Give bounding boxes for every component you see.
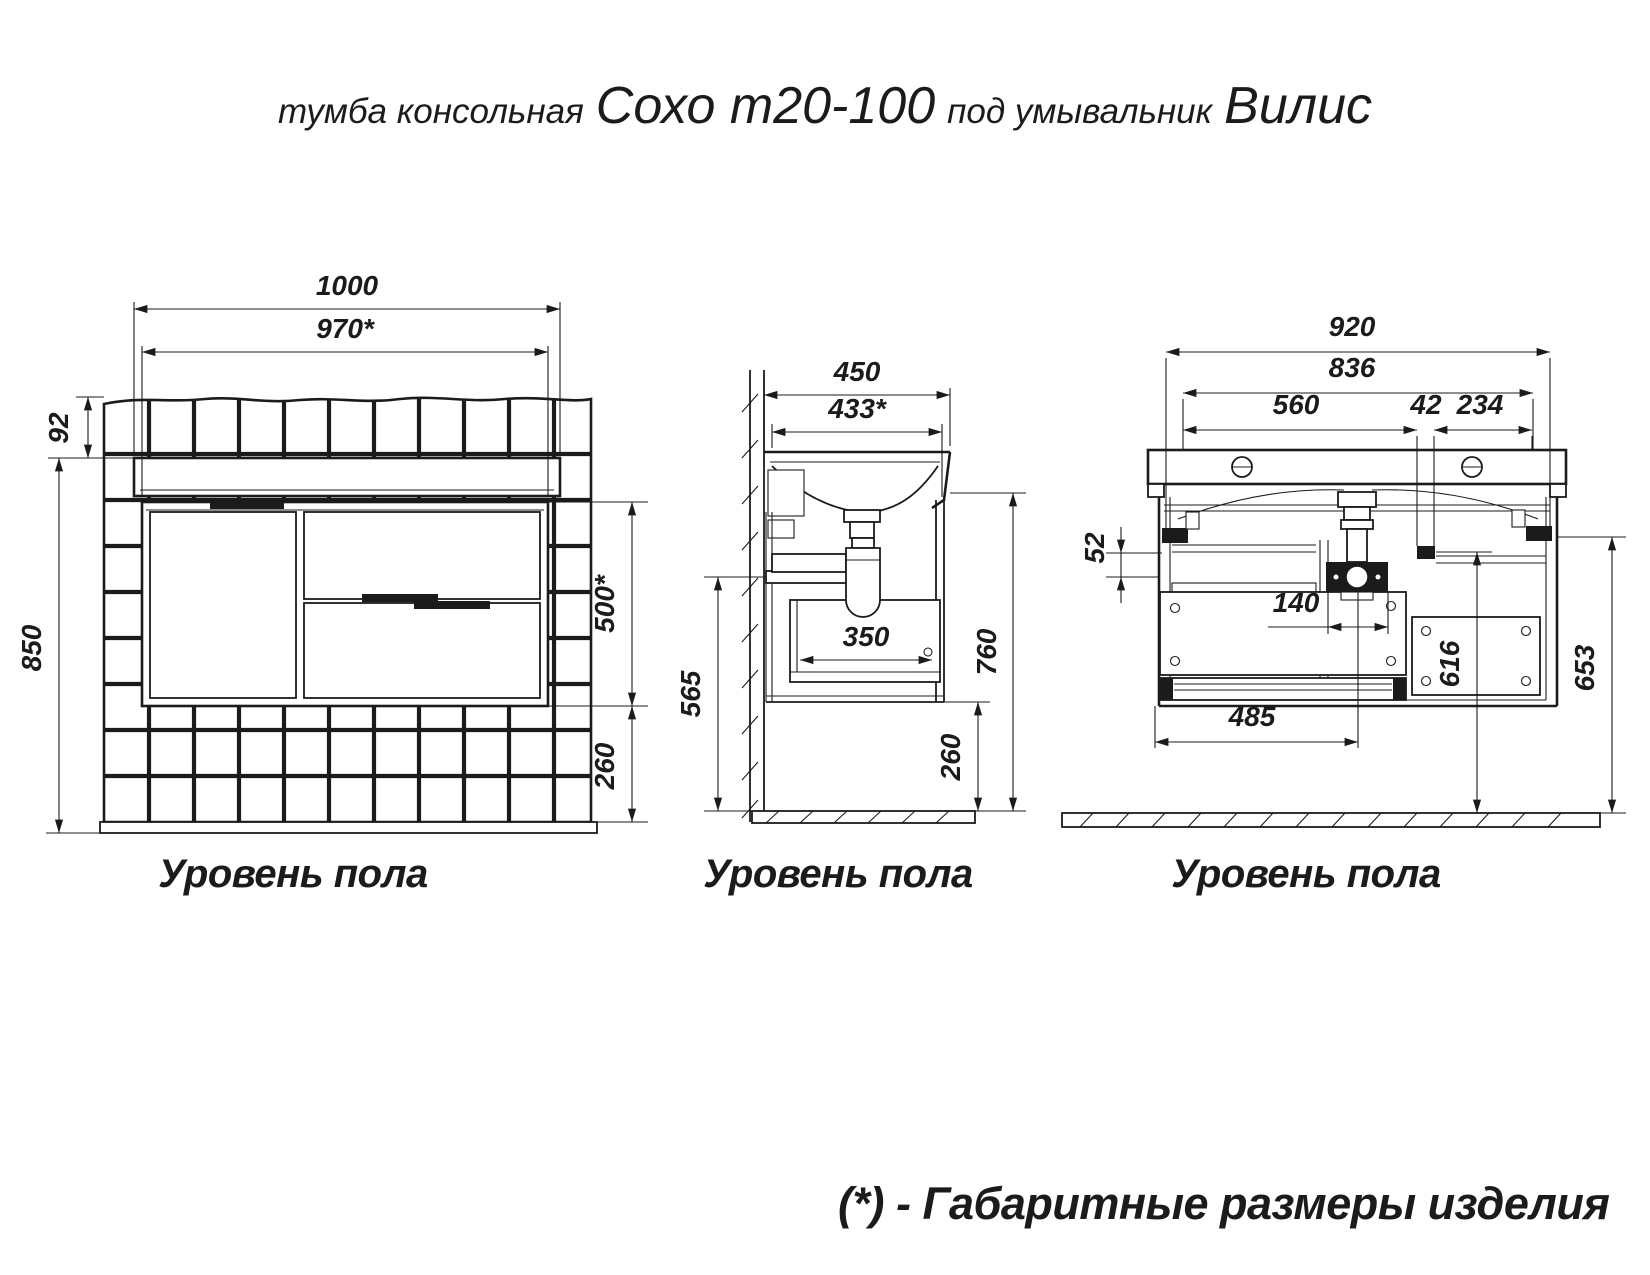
wall-bracket-right <box>1526 526 1552 541</box>
dim-back-basin-width: 920 <box>1329 311 1376 342</box>
side-wall <box>742 370 764 822</box>
dim-side-product-depth: 433* <box>827 393 887 424</box>
dim-side-clearance-height: 565 <box>675 670 706 717</box>
floor-level-label-back: Уровень пола <box>1171 852 1440 897</box>
dim-side-floor-clearance: 260 <box>935 733 966 781</box>
wall-bracket-middle <box>1417 546 1435 559</box>
dim-front-top-offset: 92 <box>43 412 74 444</box>
dim-back-bracket-height: 653 <box>1569 644 1600 691</box>
dim-side-total-depth: 450 <box>833 356 881 387</box>
dim-back-trap-width: 140 <box>1273 587 1320 618</box>
dim-side-drawer-depth: 350 <box>843 621 890 652</box>
dim-back-rail-offset: 52 <box>1079 532 1110 564</box>
floor-level-label-side: Уровень пола <box>703 852 972 897</box>
title-middle: под умывальник <box>947 92 1212 132</box>
drawer-top <box>304 512 540 599</box>
side-back-panel <box>1412 617 1540 695</box>
technical-drawing: 1000 970* 92 850 500* 260 <box>0 0 1650 1275</box>
dimensions-footnote: (*) - Габаритные размеры изделия <box>838 1178 1609 1230</box>
dim-front-floor-clearance: 260 <box>589 742 620 790</box>
dim-back-drain-right: 234 <box>1456 389 1504 420</box>
wall-bracket-left <box>1162 528 1188 543</box>
floor-level-label-front: Уровень пола <box>158 852 427 897</box>
title-prefix: тумба консольная <box>278 92 584 132</box>
dim-back-rail-height: 616 <box>1434 640 1465 687</box>
dim-front-mount-height: 850 <box>16 624 47 671</box>
drawer-bottom <box>304 603 540 698</box>
dim-back-mount-width: 836 <box>1329 352 1376 383</box>
drawing-title: тумба консольная Сохо т20-100 под умывал… <box>278 76 1372 136</box>
drawer-handle-top <box>362 594 438 602</box>
front-view: 1000 970* 92 850 500* 260 <box>16 270 648 833</box>
washbasin-front <box>134 458 560 496</box>
back-view: 920 836 560 42 234 52 <box>1062 311 1626 827</box>
side-floor <box>752 811 975 823</box>
drain-assembly <box>1326 492 1388 600</box>
side-view: 450 433* 350 565 760 260 <box>675 356 1026 823</box>
dim-front-product-width: 970* <box>316 313 375 344</box>
title-model: Сохо т20-100 <box>596 76 935 136</box>
drawer-handle-bottom <box>414 601 490 609</box>
dim-back-drain-offset: 485 <box>1228 701 1276 732</box>
dim-back-drain-left: 560 <box>1273 389 1320 420</box>
drawing-sheet: тумба консольная Сохо т20-100 под умывал… <box>0 0 1650 1275</box>
front-floor <box>100 822 597 833</box>
title-basin-name: Вилис <box>1224 76 1372 136</box>
side-basin-section <box>764 452 950 538</box>
dim-front-cabinet-height: 500* <box>589 574 620 633</box>
cabinet-front <box>142 501 548 706</box>
dim-side-total-height: 760 <box>971 628 1002 675</box>
back-floor <box>1062 813 1600 827</box>
cabinet-door <box>150 512 296 698</box>
door-handle <box>210 501 284 509</box>
dim-back-bracket-gap: 42 <box>1409 389 1442 420</box>
dim-front-total-width: 1000 <box>316 270 379 301</box>
